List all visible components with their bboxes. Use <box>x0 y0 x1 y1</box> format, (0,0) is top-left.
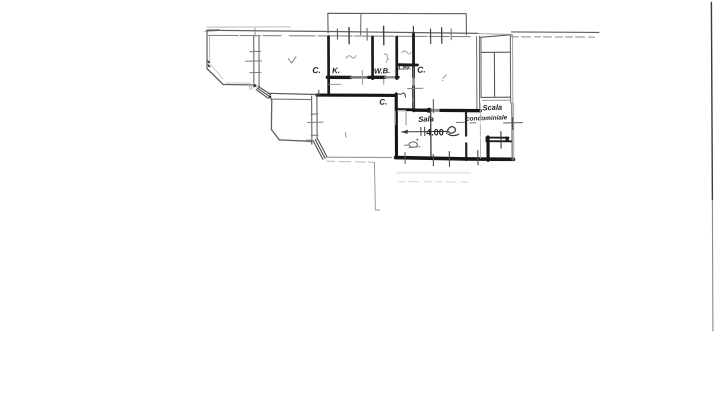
svg-text:C.: C. <box>312 65 321 75</box>
svg-text:C.: C. <box>417 64 426 74</box>
svg-text:condominiale: condominiale <box>466 114 508 122</box>
svg-text:Sala: Sala <box>418 114 434 124</box>
svg-text:K.: K. <box>332 66 340 75</box>
svg-text:W.B.: W.B. <box>374 66 390 76</box>
svg-text:4.00: 4.00 <box>426 127 444 137</box>
svg-text:C.: C. <box>379 97 387 106</box>
svg-text:Lav.: Lav. <box>398 64 411 71</box>
svg-text:Scala: Scala <box>482 103 502 113</box>
